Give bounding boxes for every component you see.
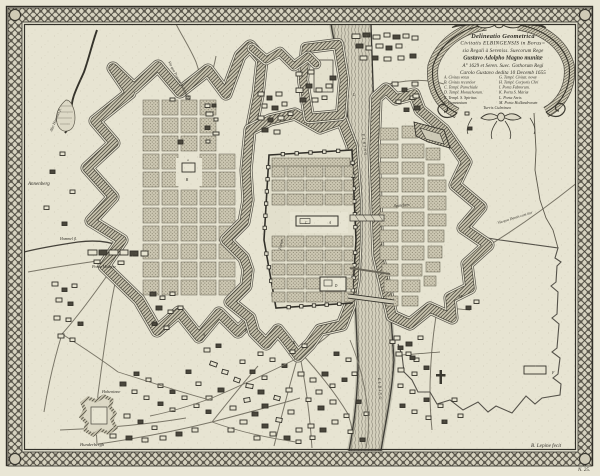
svg-text:N. 25.: N. 25. <box>577 468 590 473</box>
